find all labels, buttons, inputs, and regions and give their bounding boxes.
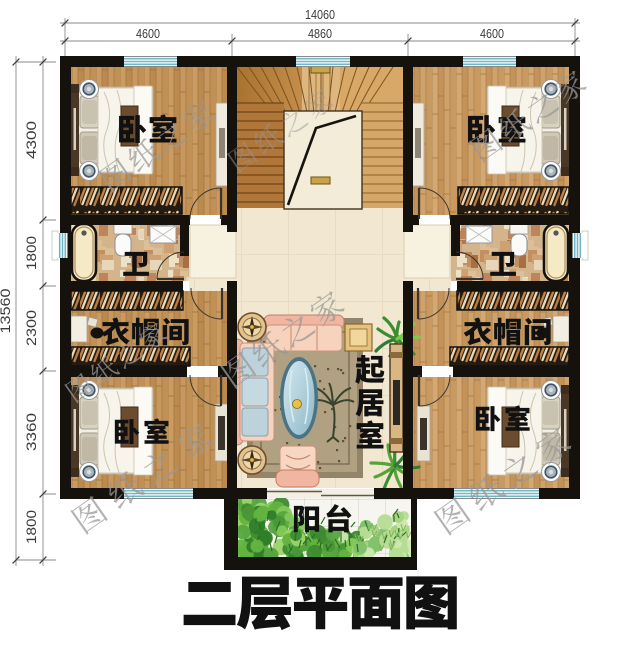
svg-text:2300: 2300 — [23, 310, 39, 346]
svg-text:4860: 4860 — [308, 26, 332, 41]
svg-text:4300: 4300 — [23, 121, 39, 159]
svg-text:1800: 1800 — [23, 510, 39, 544]
svg-text:4600: 4600 — [480, 26, 504, 41]
svg-text:14060: 14060 — [305, 7, 335, 22]
svg-text:3360: 3360 — [23, 413, 39, 451]
svg-text:1800: 1800 — [23, 236, 39, 270]
svg-text:13560: 13560 — [0, 288, 13, 333]
svg-text:4600: 4600 — [136, 26, 160, 41]
